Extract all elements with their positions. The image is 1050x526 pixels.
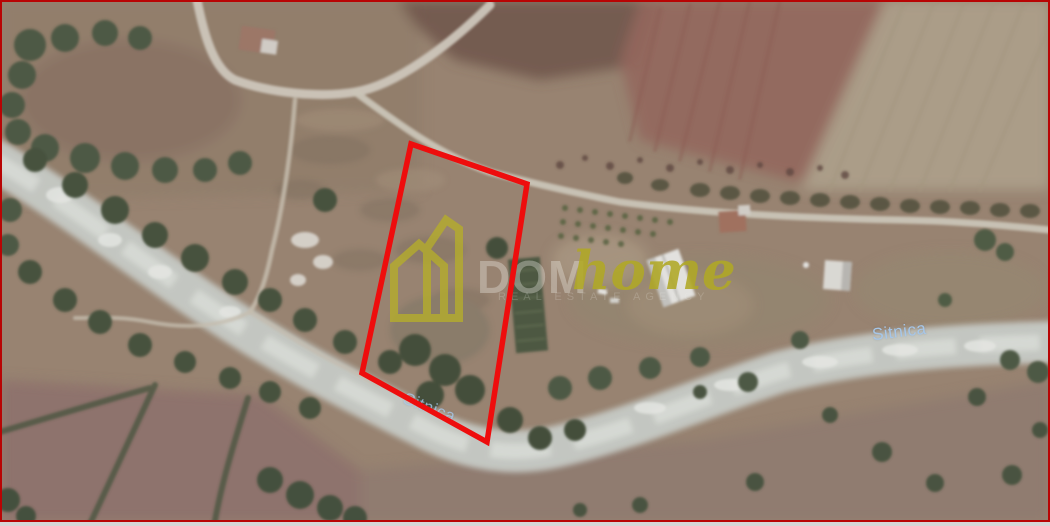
parcel-outline (362, 144, 527, 442)
bottom-strip (0, 522, 1050, 526)
frame-border-top (0, 0, 1050, 2)
map-frame: Sitnica Sitnica DOM home REAL ESTATE AGE… (0, 0, 1050, 526)
parcel-boundary-layer (0, 0, 1050, 522)
frame-border-left (0, 0, 2, 522)
satellite-map: Sitnica Sitnica DOM home REAL ESTATE AGE… (0, 0, 1050, 522)
